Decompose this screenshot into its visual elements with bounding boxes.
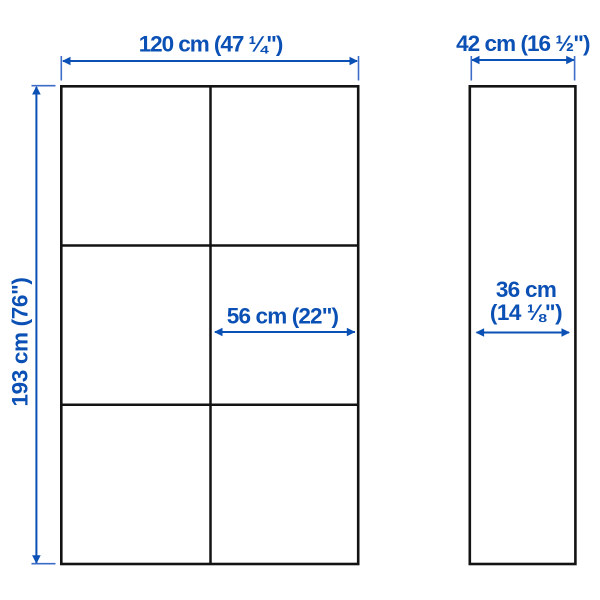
svg-text:36 cm: 36 cm <box>496 277 556 302</box>
svg-text:42 cm (16 ½"): 42 cm (16 ½") <box>456 31 590 56</box>
svg-text:(14 ⅛"): (14 ⅛") <box>490 300 562 325</box>
svg-text:56 cm (22"): 56 cm (22") <box>227 304 339 329</box>
svg-text:193 cm (76"): 193 cm (76") <box>7 277 32 406</box>
svg-text:120 cm (47 ¼"): 120 cm (47 ¼") <box>139 32 283 57</box>
